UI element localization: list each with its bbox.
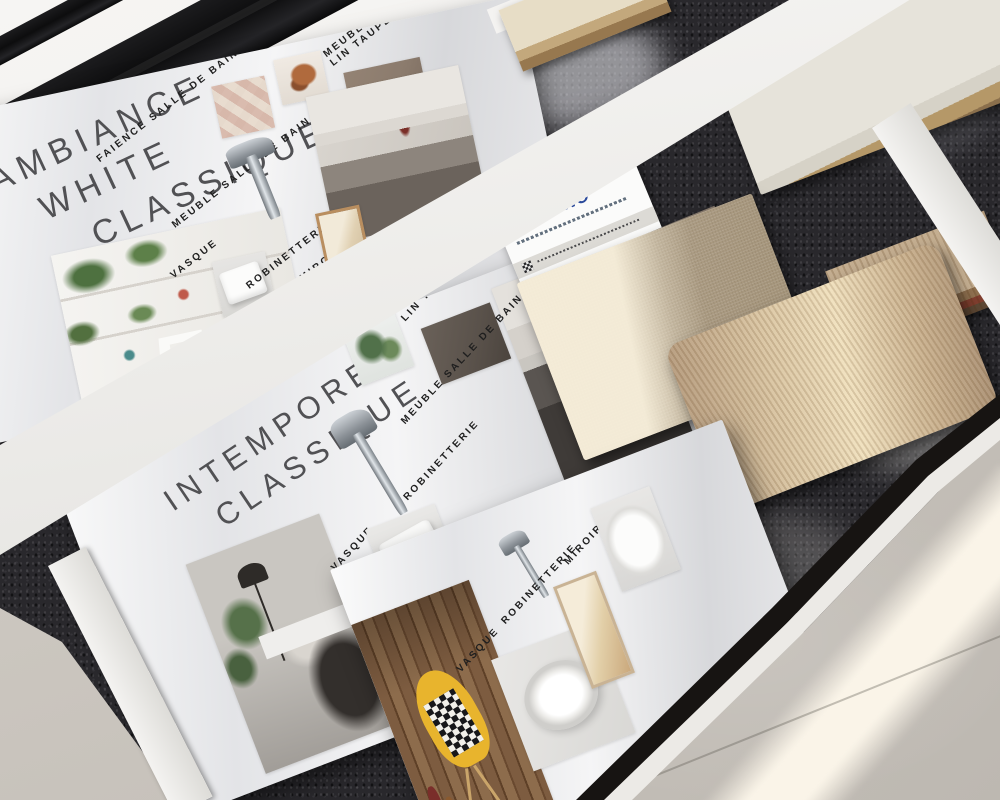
qr-code-glyph — [521, 260, 534, 273]
photo-tile-sample — [211, 76, 275, 139]
photo-bathtub — [590, 486, 681, 592]
chair-leg — [473, 764, 522, 800]
lamp-shade — [235, 560, 269, 589]
faucet-body — [352, 431, 409, 517]
sample-drawer-scene: AMBIANCE WHITE CLASSIQUE FAIENCE SALLE D… — [0, 0, 1000, 800]
amber-vase — [443, 796, 463, 800]
faucet-spout — [497, 526, 532, 557]
faucet-body — [245, 154, 281, 220]
label-robinetterie: ROBINETTERIE — [402, 418, 482, 503]
chair-leg — [465, 768, 478, 800]
